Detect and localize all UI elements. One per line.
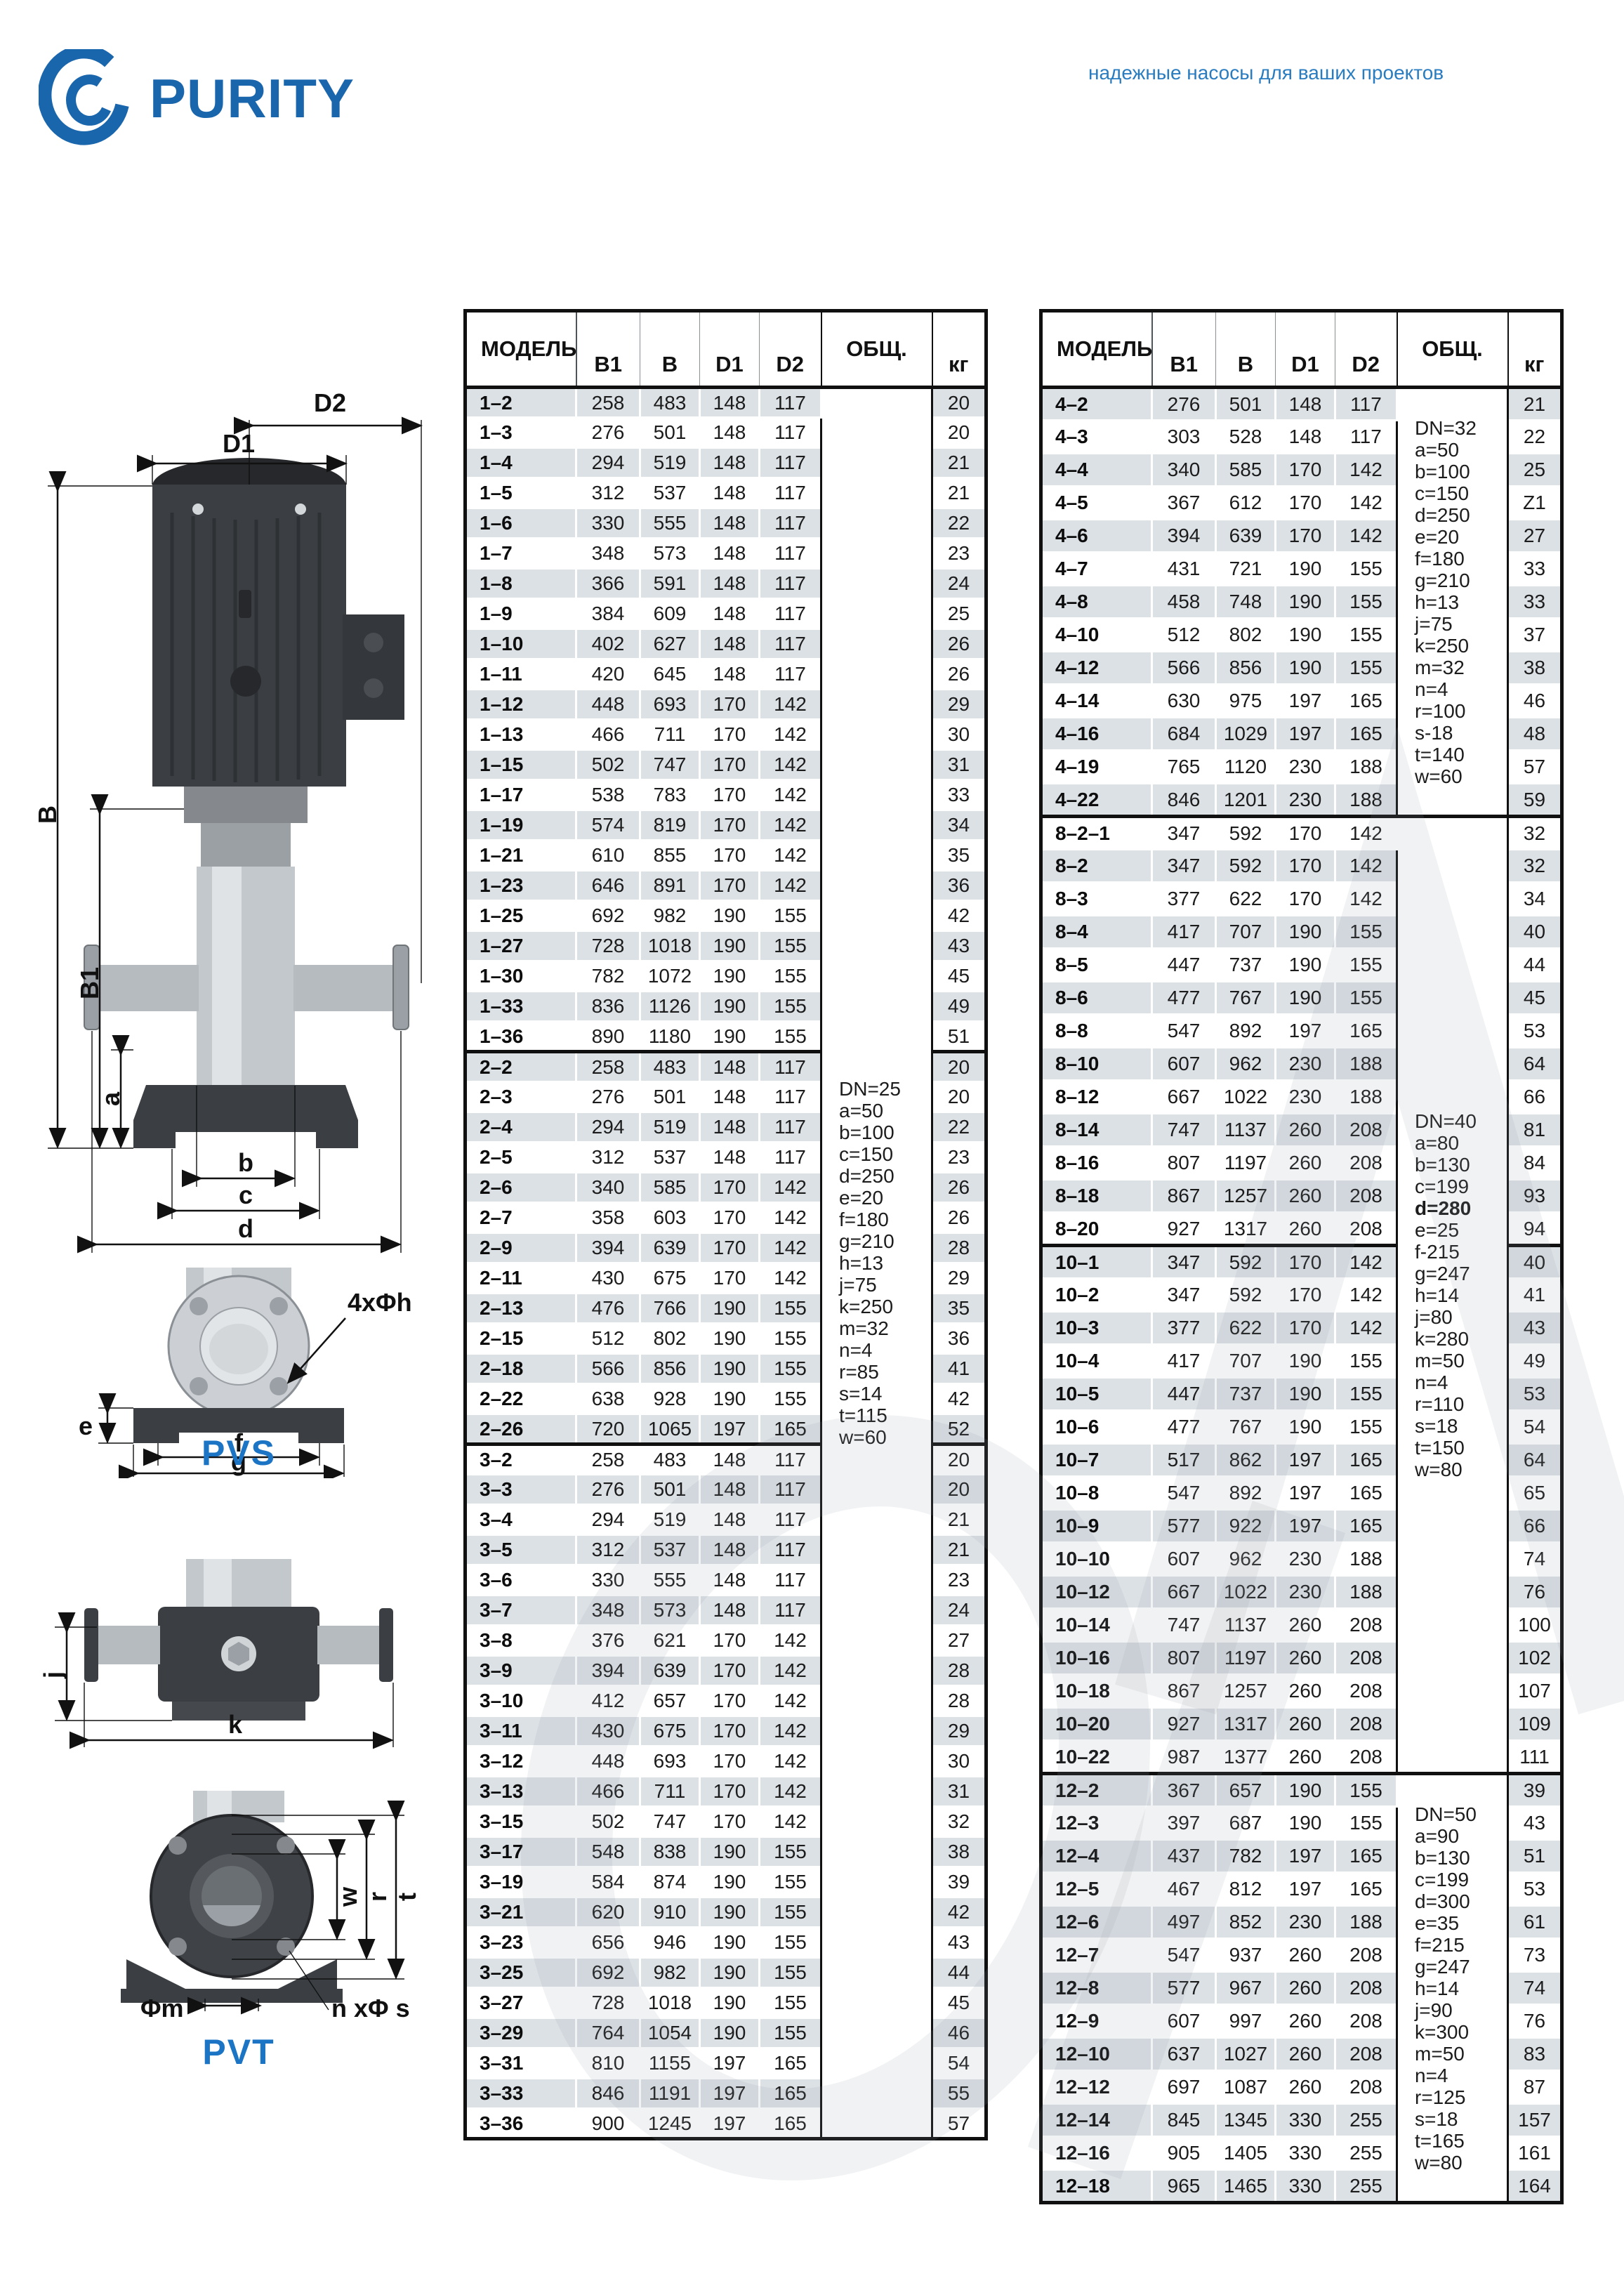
- d2-cell: 117: [760, 448, 821, 478]
- model-cell: 12–6: [1041, 1906, 1152, 1939]
- d2-cell: 142: [1335, 1312, 1397, 1345]
- common-dimension-line: n=4: [1415, 1371, 1507, 1393]
- model-cell: 10–12: [1041, 1576, 1152, 1609]
- model-cell: 1–12: [466, 690, 576, 720]
- common-dimension-line: w=60: [1415, 765, 1507, 787]
- d1-cell: 190: [700, 1958, 760, 1988]
- d1-cell: 148: [700, 418, 760, 448]
- model-cell: 12–9: [1041, 2005, 1152, 2038]
- d2-cell: 117: [760, 1082, 821, 1112]
- kg-cell: 53: [1508, 1378, 1562, 1411]
- d1-cell: 170: [700, 1203, 760, 1233]
- kg-cell: 46: [932, 2018, 986, 2048]
- kg-cell: 33: [1508, 586, 1562, 619]
- b1-cell: 836: [576, 992, 640, 1022]
- kg-cell: 23: [932, 1143, 986, 1173]
- table-header-row: МОДЕЛЬ B1 B D1 D2 ОБЩ. кг: [1041, 311, 1562, 388]
- b1-cell: 987: [1152, 1741, 1216, 1774]
- common-dimension-line: m=50: [1415, 1350, 1507, 1371]
- b-cell: 622: [1216, 1312, 1276, 1345]
- common-dimension-line: c=150: [839, 1143, 931, 1165]
- col-header-kg: кг: [1508, 311, 1562, 388]
- b1-cell: 467: [1152, 1873, 1216, 1906]
- d2-cell: 155: [760, 2018, 821, 2048]
- col-header-kg: кг: [932, 311, 986, 388]
- b-cell: 501: [1216, 388, 1276, 421]
- common-dimension-line: DN=25: [839, 1078, 931, 1100]
- model-cell: 1–17: [466, 780, 576, 810]
- b-cell: 537: [640, 1143, 700, 1173]
- b-cell: 537: [640, 478, 700, 508]
- b-cell: 967: [1216, 1972, 1276, 2005]
- kg-cell: 20: [932, 1475, 986, 1505]
- model-cell: 1–9: [466, 599, 576, 629]
- common-dimension-line: t=150: [1415, 1437, 1507, 1459]
- dim-label-b: b: [238, 1148, 253, 1177]
- common-dimension-line: a=50: [1415, 439, 1507, 461]
- d2-cell: 155: [1335, 553, 1397, 586]
- b-cell: 737: [1216, 949, 1276, 982]
- b1-cell: 258: [576, 388, 640, 418]
- d1-cell: 170: [700, 810, 760, 841]
- model-cell: 3–21: [466, 1897, 576, 1928]
- b1-cell: 697: [1152, 2071, 1216, 2104]
- b1-cell: 965: [1152, 2170, 1216, 2203]
- model-cell: 3–12: [466, 1747, 576, 1777]
- d1-cell: 260: [1276, 1675, 1335, 1708]
- b1-cell: 303: [1152, 421, 1216, 454]
- d2-cell: 208: [1335, 1114, 1397, 1147]
- b1-cell: 667: [1152, 1576, 1216, 1609]
- d1-cell: 148: [1276, 421, 1335, 454]
- d2-cell: 117: [760, 539, 821, 569]
- b1-cell: 258: [576, 1445, 640, 1475]
- b1-cell: 807: [1152, 1642, 1216, 1675]
- model-cell: 2–15: [466, 1324, 576, 1354]
- b-cell: 855: [640, 841, 700, 871]
- dim-label-r: r: [363, 1892, 392, 1902]
- d2-cell: 142: [760, 1716, 821, 1747]
- b-cell: 609: [640, 599, 700, 629]
- common-dimension-line: m=32: [839, 1317, 931, 1339]
- d2-cell: 155: [760, 1958, 821, 1988]
- b-cell: 1022: [1216, 1576, 1276, 1609]
- common-dimensions-cell: DN=32a=50b=100c=150d=250e=20f=180g=210h=…: [1397, 388, 1508, 817]
- kg-cell: 51: [1508, 1840, 1562, 1873]
- d1-cell: 170: [1276, 1279, 1335, 1312]
- d2-cell: 142: [760, 690, 821, 720]
- d1-cell: 190: [700, 931, 760, 961]
- d1-cell: 190: [700, 1867, 760, 1897]
- kg-cell: 107: [1508, 1675, 1562, 1708]
- common-dimension-line: w=80: [1415, 2152, 1507, 2173]
- model-cell: 12–8: [1041, 1972, 1152, 2005]
- kg-cell: 21: [932, 1505, 986, 1535]
- d1-cell: 190: [700, 992, 760, 1022]
- d1-cell: 170: [1276, 487, 1335, 520]
- d2-cell: 165: [760, 2109, 821, 2139]
- d2-cell: 155: [760, 901, 821, 931]
- d1-cell: 190: [1276, 1378, 1335, 1411]
- d1-cell: 197: [1276, 685, 1335, 718]
- b-cell: 622: [1216, 883, 1276, 916]
- d1-cell: 170: [700, 750, 760, 780]
- d1-cell: 330: [1276, 2170, 1335, 2203]
- d1-cell: 260: [1276, 1147, 1335, 1180]
- model-cell: 2–6: [466, 1173, 576, 1203]
- d2-cell: 155: [1335, 619, 1397, 652]
- d2-cell: 208: [1335, 1213, 1397, 1246]
- b1-cell: 377: [1152, 1312, 1216, 1345]
- table-row: 4–2276501148117DN=32a=50b=100c=150d=250e…: [1041, 388, 1562, 421]
- d1-cell: 190: [700, 1324, 760, 1354]
- b-cell: 802: [1216, 619, 1276, 652]
- kg-cell: 53: [1508, 1015, 1562, 1048]
- b1-cell: 548: [576, 1837, 640, 1867]
- b1-cell: 347: [1152, 1246, 1216, 1279]
- d1-cell: 148: [700, 629, 760, 659]
- b-cell: 592: [1216, 817, 1276, 850]
- d2-cell: 117: [760, 1143, 821, 1173]
- d2-cell: 165: [760, 1414, 821, 1445]
- b-cell: 737: [1216, 1378, 1276, 1411]
- model-cell: 1–36: [466, 1022, 576, 1052]
- b-cell: 675: [640, 1716, 700, 1747]
- b1-cell: 330: [576, 508, 640, 539]
- kg-cell: 102: [1508, 1642, 1562, 1675]
- b-cell: 707: [1216, 916, 1276, 949]
- model-cell: 3–31: [466, 2048, 576, 2079]
- b-cell: 1257: [1216, 1675, 1276, 1708]
- b-cell: 1054: [640, 2018, 700, 2048]
- kg-cell: 43: [932, 1928, 986, 1958]
- kg-cell: 32: [932, 1807, 986, 1837]
- col-header-b1: B1: [576, 311, 640, 388]
- d1-cell: 260: [1276, 1114, 1335, 1147]
- d1-cell: 260: [1276, 2038, 1335, 2071]
- b-cell: 874: [640, 1867, 700, 1897]
- model-cell: 4–16: [1041, 718, 1152, 751]
- d1-cell: 170: [700, 1626, 760, 1656]
- b1-cell: 276: [576, 418, 640, 448]
- b1-cell: 538: [576, 780, 640, 810]
- kg-cell: 40: [1508, 916, 1562, 949]
- b-cell: 782: [1216, 1840, 1276, 1873]
- dim-label-d2: D2: [314, 388, 346, 417]
- common-dimension-line: e=20: [839, 1187, 931, 1209]
- common-dimension-line: h=14: [1415, 1284, 1507, 1306]
- b1-cell: 347: [1152, 817, 1216, 850]
- d2-cell: 142: [760, 1263, 821, 1294]
- model-cell: 4–19: [1041, 751, 1152, 784]
- b-cell: 693: [640, 1747, 700, 1777]
- b1-cell: 294: [576, 448, 640, 478]
- b1-cell: 927: [1152, 1213, 1216, 1246]
- dimensions-table-series-1-2-3: МОДЕЛЬ B1 B D1 D2 ОБЩ. кг 1–225848314811…: [463, 309, 988, 2140]
- common-dimension-line: h=13: [1415, 591, 1507, 613]
- b-cell: 675: [640, 1263, 700, 1294]
- b-cell: 591: [640, 569, 700, 599]
- model-cell: 3–27: [466, 1988, 576, 2018]
- model-cell: 12–4: [1041, 1840, 1152, 1873]
- kg-cell: 20: [932, 1082, 986, 1112]
- d1-cell: 170: [1276, 883, 1335, 916]
- d1-cell: 230: [1276, 1543, 1335, 1576]
- model-cell: 3–10: [466, 1686, 576, 1716]
- kg-cell: 61: [1508, 1906, 1562, 1939]
- d2-cell: 142: [760, 1233, 821, 1263]
- d1-cell: 190: [700, 1928, 760, 1958]
- d2-cell: 165: [1335, 1873, 1397, 1906]
- common-dimension-line: j=75: [839, 1274, 931, 1296]
- common-dimension-line: c=150: [1415, 482, 1507, 504]
- b-cell: 693: [640, 690, 700, 720]
- d1-cell: 260: [1276, 1972, 1335, 2005]
- d2-cell: 155: [760, 992, 821, 1022]
- d2-cell: 155: [760, 1867, 821, 1897]
- model-cell: 1–15: [466, 750, 576, 780]
- b-cell: 962: [1216, 1048, 1276, 1081]
- kg-cell: 45: [932, 961, 986, 992]
- common-dimension-line: m=50: [1415, 2043, 1507, 2065]
- d1-cell: 170: [1276, 1312, 1335, 1345]
- kg-cell: 59: [1508, 784, 1562, 817]
- model-cell: 1–27: [466, 931, 576, 961]
- kg-cell: 30: [932, 1747, 986, 1777]
- d2-cell: 155: [760, 1897, 821, 1928]
- common-dimension-line: a=50: [839, 1100, 931, 1121]
- d1-cell: 190: [700, 1022, 760, 1052]
- d1-cell: 170: [700, 780, 760, 810]
- d1-cell: 230: [1276, 1576, 1335, 1609]
- d1-cell: 170: [1276, 850, 1335, 883]
- col-header-d1: D1: [1276, 311, 1335, 388]
- d1-cell: 170: [1276, 454, 1335, 487]
- b1-cell: 397: [1152, 1807, 1216, 1840]
- d1-cell: 190: [1276, 916, 1335, 949]
- kg-cell: 54: [932, 2048, 986, 2079]
- dim-label-k: k: [228, 1710, 243, 1739]
- common-dimension-line: a=80: [1415, 1132, 1507, 1154]
- common-dimension-line: j=75: [1415, 613, 1507, 635]
- table-row: 12–2367657190155DN=50a=90b=130c=199d=300…: [1041, 1774, 1562, 1807]
- d2-cell: 155: [760, 1294, 821, 1324]
- b1-cell: 402: [576, 629, 640, 659]
- d1-cell: 190: [700, 1354, 760, 1384]
- d1-cell: 190: [1276, 949, 1335, 982]
- common-dimension-line: DN=40: [1415, 1110, 1507, 1132]
- d2-cell: 117: [760, 388, 821, 418]
- common-dimension-line: d=300: [1415, 1890, 1507, 1912]
- d1-cell: 197: [1276, 1477, 1335, 1510]
- model-cell: 8–5: [1041, 949, 1152, 982]
- model-cell: 3–15: [466, 1807, 576, 1837]
- d2-cell: 255: [1335, 2137, 1397, 2170]
- model-cell: 1–11: [466, 659, 576, 690]
- model-cell: 10–10: [1041, 1543, 1152, 1576]
- d1-cell: 170: [700, 1233, 760, 1263]
- d1-cell: 197: [1276, 1840, 1335, 1873]
- b-cell: 962: [1216, 1543, 1276, 1576]
- common-dimension-line: d=250: [1415, 504, 1507, 526]
- b1-cell: 720: [576, 1414, 640, 1445]
- d2-cell: 208: [1335, 2071, 1397, 2104]
- b-cell: 657: [640, 1686, 700, 1716]
- common-dimension-line: e=35: [1415, 1912, 1507, 1934]
- b-cell: 483: [640, 1052, 700, 1082]
- d2-cell: 208: [1335, 1741, 1397, 1774]
- model-cell: 10–4: [1041, 1345, 1152, 1378]
- b-cell: 856: [1216, 652, 1276, 685]
- dim-label-w: w: [334, 1886, 362, 1907]
- d1-cell: 260: [1276, 2005, 1335, 2038]
- d1-cell: 190: [1276, 652, 1335, 685]
- b1-cell: 294: [576, 1112, 640, 1143]
- d2-cell: 155: [760, 931, 821, 961]
- d1-cell: 148: [700, 1112, 760, 1143]
- b-cell: 603: [640, 1203, 700, 1233]
- model-cell: 3–6: [466, 1565, 576, 1596]
- d2-cell: 155: [1335, 1774, 1397, 1807]
- common-dimension-line: s-18: [1415, 722, 1507, 744]
- b1-cell: 447: [1152, 1378, 1216, 1411]
- kg-cell: 48: [1508, 718, 1562, 751]
- kg-cell: 35: [932, 841, 986, 871]
- b1-cell: 607: [1152, 2005, 1216, 2038]
- d2-cell: 117: [760, 599, 821, 629]
- d1-cell: 170: [700, 1173, 760, 1203]
- b-cell: 819: [640, 810, 700, 841]
- kg-cell: Z1: [1508, 487, 1562, 520]
- d2-cell: 165: [760, 2048, 821, 2079]
- b-cell: 639: [640, 1656, 700, 1686]
- common-dimension-line: h=14: [1415, 1978, 1507, 1999]
- d1-cell: 148: [700, 448, 760, 478]
- b1-cell: 667: [1152, 1081, 1216, 1114]
- b-cell: 838: [640, 1837, 700, 1867]
- b1-cell: 376: [576, 1626, 640, 1656]
- b-cell: 519: [640, 1112, 700, 1143]
- b-cell: 519: [640, 448, 700, 478]
- d2-cell: 142: [1335, 454, 1397, 487]
- d2-cell: 142: [760, 780, 821, 810]
- dim-label-c: c: [239, 1180, 253, 1209]
- b1-cell: 502: [576, 1807, 640, 1837]
- d2-cell: 165: [1335, 718, 1397, 751]
- common-dimension-line: m=32: [1415, 657, 1507, 678]
- b1-cell: 747: [1152, 1114, 1216, 1147]
- b1-cell: 547: [1152, 1477, 1216, 1510]
- d1-cell: 148: [700, 1052, 760, 1082]
- kg-cell: 54: [1508, 1411, 1562, 1444]
- b1-cell: 358: [576, 1203, 640, 1233]
- common-dimension-line: f=180: [1415, 548, 1507, 570]
- b1-cell: 577: [1152, 1972, 1216, 2005]
- d1-cell: 197: [700, 1414, 760, 1445]
- b1-cell: 458: [1152, 586, 1216, 619]
- kg-cell: 36: [932, 1324, 986, 1354]
- b-cell: 645: [640, 659, 700, 690]
- d1-cell: 197: [700, 2109, 760, 2139]
- b-cell: 747: [640, 750, 700, 780]
- b1-cell: 348: [576, 1596, 640, 1626]
- model-cell: 10–2: [1041, 1279, 1152, 1312]
- kg-cell: 20: [932, 388, 986, 418]
- bolt-callout-label: 4xΦh: [348, 1288, 412, 1317]
- model-cell: 1–30: [466, 961, 576, 992]
- b1-cell: 807: [1152, 1147, 1216, 1180]
- col-header-b1: B1: [1152, 311, 1216, 388]
- d1-cell: 230: [1276, 784, 1335, 817]
- d1-cell: 190: [700, 2018, 760, 2048]
- b-cell: 555: [640, 508, 700, 539]
- b1-cell: 430: [576, 1716, 640, 1747]
- d2-cell: 117: [760, 659, 821, 690]
- d1-cell: 190: [1276, 982, 1335, 1015]
- model-cell: 8–2: [1041, 850, 1152, 883]
- kg-cell: 32: [1508, 850, 1562, 883]
- b1-cell: 512: [1152, 619, 1216, 652]
- b-cell: 1120: [1216, 751, 1276, 784]
- b-cell: 891: [640, 871, 700, 901]
- kg-cell: 42: [932, 1897, 986, 1928]
- d1-cell: 170: [700, 1747, 760, 1777]
- model-cell: 3–2: [466, 1445, 576, 1475]
- b-cell: 573: [640, 539, 700, 569]
- b1-cell: 607: [1152, 1543, 1216, 1576]
- b-cell: 1191: [640, 2079, 700, 2109]
- b-cell: 802: [640, 1324, 700, 1354]
- d2-cell: 155: [760, 1837, 821, 1867]
- model-cell: 2–2: [466, 1052, 576, 1082]
- d1-cell: 260: [1276, 1741, 1335, 1774]
- b1-cell: 312: [576, 478, 640, 508]
- kg-cell: 164: [1508, 2170, 1562, 2203]
- model-cell: 8–20: [1041, 1213, 1152, 1246]
- d2-cell: 155: [1335, 916, 1397, 949]
- b-cell: 766: [640, 1294, 700, 1324]
- b-cell: 767: [1216, 982, 1276, 1015]
- b-cell: 585: [640, 1173, 700, 1203]
- d1-cell: 190: [1276, 586, 1335, 619]
- d2-cell: 142: [760, 1686, 821, 1716]
- d2-cell: 165: [1335, 1840, 1397, 1873]
- kg-cell: 43: [932, 931, 986, 961]
- model-cell: 10–14: [1041, 1609, 1152, 1642]
- d1-cell: 170: [700, 690, 760, 720]
- d1-cell: 148: [700, 659, 760, 690]
- model-cell: 10–5: [1041, 1378, 1152, 1411]
- b-cell: 1377: [1216, 1741, 1276, 1774]
- d1-cell: 230: [1276, 1906, 1335, 1939]
- model-cell: 1–5: [466, 478, 576, 508]
- d1-cell: 148: [700, 1535, 760, 1565]
- model-cell: 10–3: [1041, 1312, 1152, 1345]
- kg-cell: 100: [1508, 1609, 1562, 1642]
- b1-cell: 610: [576, 841, 640, 871]
- d2-cell: 155: [1335, 586, 1397, 619]
- model-cell: 1–8: [466, 569, 576, 599]
- model-cell: 3–3: [466, 1475, 576, 1505]
- common-dimension-line: c=199: [1415, 1176, 1507, 1197]
- model-cell: 2–18: [466, 1354, 576, 1384]
- common-dimension-line: j=80: [1415, 1306, 1507, 1328]
- d1-cell: 148: [700, 388, 760, 418]
- pvs-label: PVS: [28, 1433, 449, 1473]
- model-cell: 4–8: [1041, 586, 1152, 619]
- b-cell: 1029: [1216, 718, 1276, 751]
- kg-cell: 21: [932, 448, 986, 478]
